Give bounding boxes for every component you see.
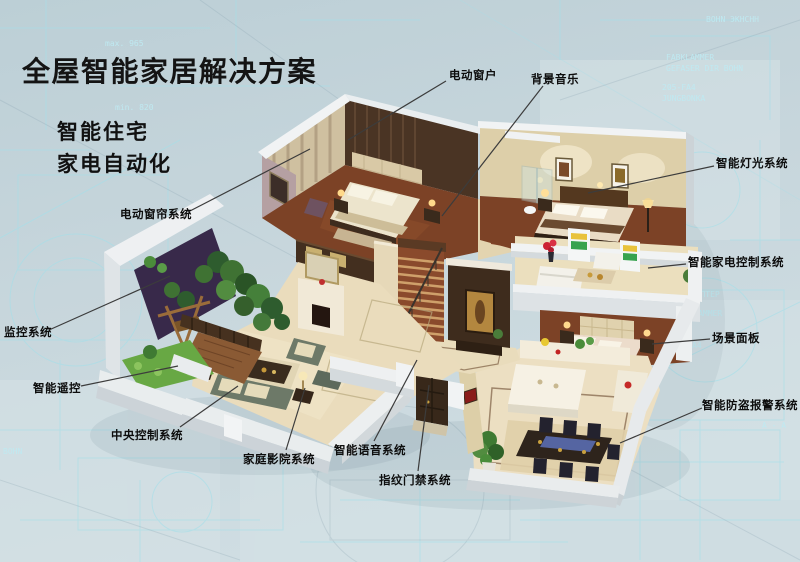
callout-label-smart-burglar-alarm-system: 智能防盗报警系统 — [702, 397, 798, 413]
subtitle-smart-residence: 智能住宅 — [57, 116, 257, 146]
callout-label-electric-window: 电动窗户 — [449, 67, 497, 83]
callout-label-smart-voice-system: 智能语音系统 — [334, 442, 406, 458]
infographic-page: max. 965 min. 820 BOHN ЭКНСНН FABKLAMMER… — [0, 0, 800, 562]
page-title: 全屋智能家居解决方案 — [22, 50, 317, 90]
callout-label-home-theater-system: 家庭影院系统 — [243, 451, 315, 467]
callout-label-fingerprint-access-system: 指纹门禁系统 — [379, 472, 451, 488]
callout-label-smart-lighting-system: 智能灯光系统 — [716, 155, 788, 171]
callout-label-monitoring-system: 监控系统 — [4, 324, 52, 340]
callout-label-scene-panel: 场景面板 — [712, 330, 760, 346]
callout-label-electric-curtain-system: 电动窗帘系统 — [120, 206, 192, 222]
callout-label-background-music: 背景音乐 — [531, 71, 579, 87]
callout-label-central-control-system: 中央控制系统 — [111, 427, 183, 443]
subtitle-appliance-automation: 家电自动化 — [57, 148, 257, 178]
callout-label-smart-appliance-control-system: 智能家电控制系统 — [688, 254, 784, 270]
callout-label-smart-remote-control: 智能遥控 — [33, 380, 81, 396]
